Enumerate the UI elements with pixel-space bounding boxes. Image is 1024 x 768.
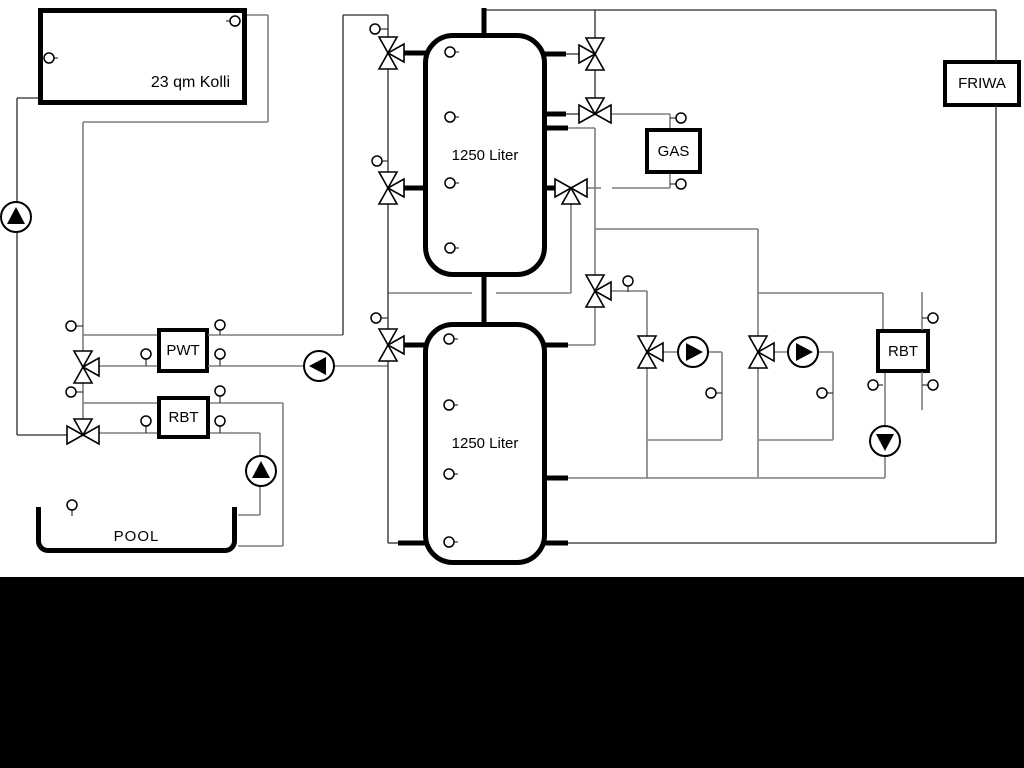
rbt-pool-heat-exchanger-box: RBT: [157, 396, 210, 439]
temperature-sensor-icon: [676, 179, 686, 189]
three-way-valve-icon: [379, 329, 397, 345]
hydraulic-scheme: 23 qm Kolli 1250 Liter 1250 Liter GAS FR…: [0, 0, 1024, 768]
gas-boiler-box: GAS: [645, 128, 702, 174]
three-way-valve-icon: [555, 179, 571, 197]
three-way-valve-icon: [638, 336, 656, 352]
pump-direction-arrow: [796, 343, 813, 361]
temperature-sensor-icon: [706, 388, 716, 398]
friwa-label: FRIWA: [958, 75, 1006, 92]
three-way-valve-icon: [379, 53, 397, 69]
solar-collector-box: 23 qm Kolli: [38, 8, 247, 105]
pump-icon: [304, 351, 334, 381]
temperature-sensor-icon: [141, 349, 151, 359]
temperature-sensor-icon: [215, 349, 225, 359]
three-way-valve-icon: [388, 336, 404, 354]
pwt-label: PWT: [166, 342, 199, 359]
temperature-sensor-icon: [215, 416, 225, 426]
letterbox-band: [0, 577, 1024, 768]
pump-icon: [246, 456, 276, 486]
three-way-valve-icon: [586, 98, 604, 114]
friwa-box: FRIWA: [943, 60, 1021, 107]
temperature-sensor-icon: [66, 321, 76, 331]
solar-collector-label: 23 qm Kolli: [151, 74, 230, 92]
temperature-sensor-icon: [66, 387, 76, 397]
three-way-valve-icon: [586, 54, 604, 70]
three-way-valve-icon: [74, 367, 92, 383]
three-way-valve-icon: [647, 343, 663, 361]
three-way-valve-icon: [586, 291, 604, 307]
pump-direction-arrow: [686, 343, 703, 361]
temperature-sensor-icon: [141, 416, 151, 426]
three-way-valve-icon: [379, 345, 397, 361]
buffer-tank-1-label: 1250 Liter: [452, 147, 519, 164]
three-way-valve-icon: [388, 179, 404, 197]
temperature-sensor-icon: [215, 320, 225, 330]
rbt-right-heat-exchanger-box: RBT: [876, 329, 930, 373]
three-way-valve-icon: [83, 358, 99, 376]
three-way-valve-icon: [67, 426, 83, 444]
pump-icon: [678, 337, 708, 367]
three-way-valve-icon: [379, 37, 397, 53]
three-way-valve-icon: [579, 105, 595, 123]
pool-basin: POOL: [36, 507, 237, 553]
temperature-sensor-icon: [623, 276, 633, 286]
three-way-valve-icon: [749, 352, 767, 368]
pump-direction-arrow: [309, 357, 326, 375]
temperature-sensor-icon: [868, 380, 878, 390]
three-way-valve-icon: [571, 179, 587, 197]
temperature-sensor-icon: [817, 388, 827, 398]
pump-direction-arrow: [7, 207, 25, 224]
buffer-tank-1: 1250 Liter: [423, 33, 547, 277]
three-way-valve-icon: [74, 351, 92, 367]
pool-label: POOL: [41, 528, 232, 545]
pump-icon: [870, 426, 900, 456]
pump-icon: [1, 202, 31, 232]
buffer-tank-2-label: 1250 Liter: [452, 435, 519, 452]
three-way-valve-icon: [562, 188, 580, 204]
three-way-valve-icon: [379, 188, 397, 204]
three-way-valve-icon: [595, 105, 611, 123]
three-way-valve-icon: [586, 38, 604, 54]
temperature-sensor-icon: [215, 386, 225, 396]
pump-direction-arrow: [252, 461, 270, 478]
three-way-valve-icon: [638, 352, 656, 368]
temperature-sensor-icon: [928, 313, 938, 323]
temperature-sensor-icon: [371, 313, 381, 323]
three-way-valve-icon: [579, 45, 595, 63]
temperature-sensor-icon: [928, 380, 938, 390]
three-way-valve-icon: [586, 275, 604, 291]
pump-icon: [788, 337, 818, 367]
three-way-valve-icon: [74, 419, 92, 435]
three-way-valve-icon: [749, 336, 767, 352]
buffer-tank-2: 1250 Liter: [423, 322, 547, 565]
three-way-valve-icon: [595, 282, 611, 300]
gas-boiler-label: GAS: [658, 143, 690, 160]
three-way-valve-icon: [388, 44, 404, 62]
pump-direction-arrow: [876, 434, 894, 451]
rbt-pool-label: RBT: [169, 409, 199, 426]
three-way-valve-icon: [379, 172, 397, 188]
rbt-right-label: RBT: [888, 343, 918, 360]
three-way-valve-icon: [83, 426, 99, 444]
pwt-heat-exchanger-box: PWT: [157, 328, 209, 373]
temperature-sensor-icon: [676, 113, 686, 123]
temperature-sensor-icon: [372, 156, 382, 166]
temperature-sensor-icon: [370, 24, 380, 34]
three-way-valve-icon: [758, 343, 774, 361]
